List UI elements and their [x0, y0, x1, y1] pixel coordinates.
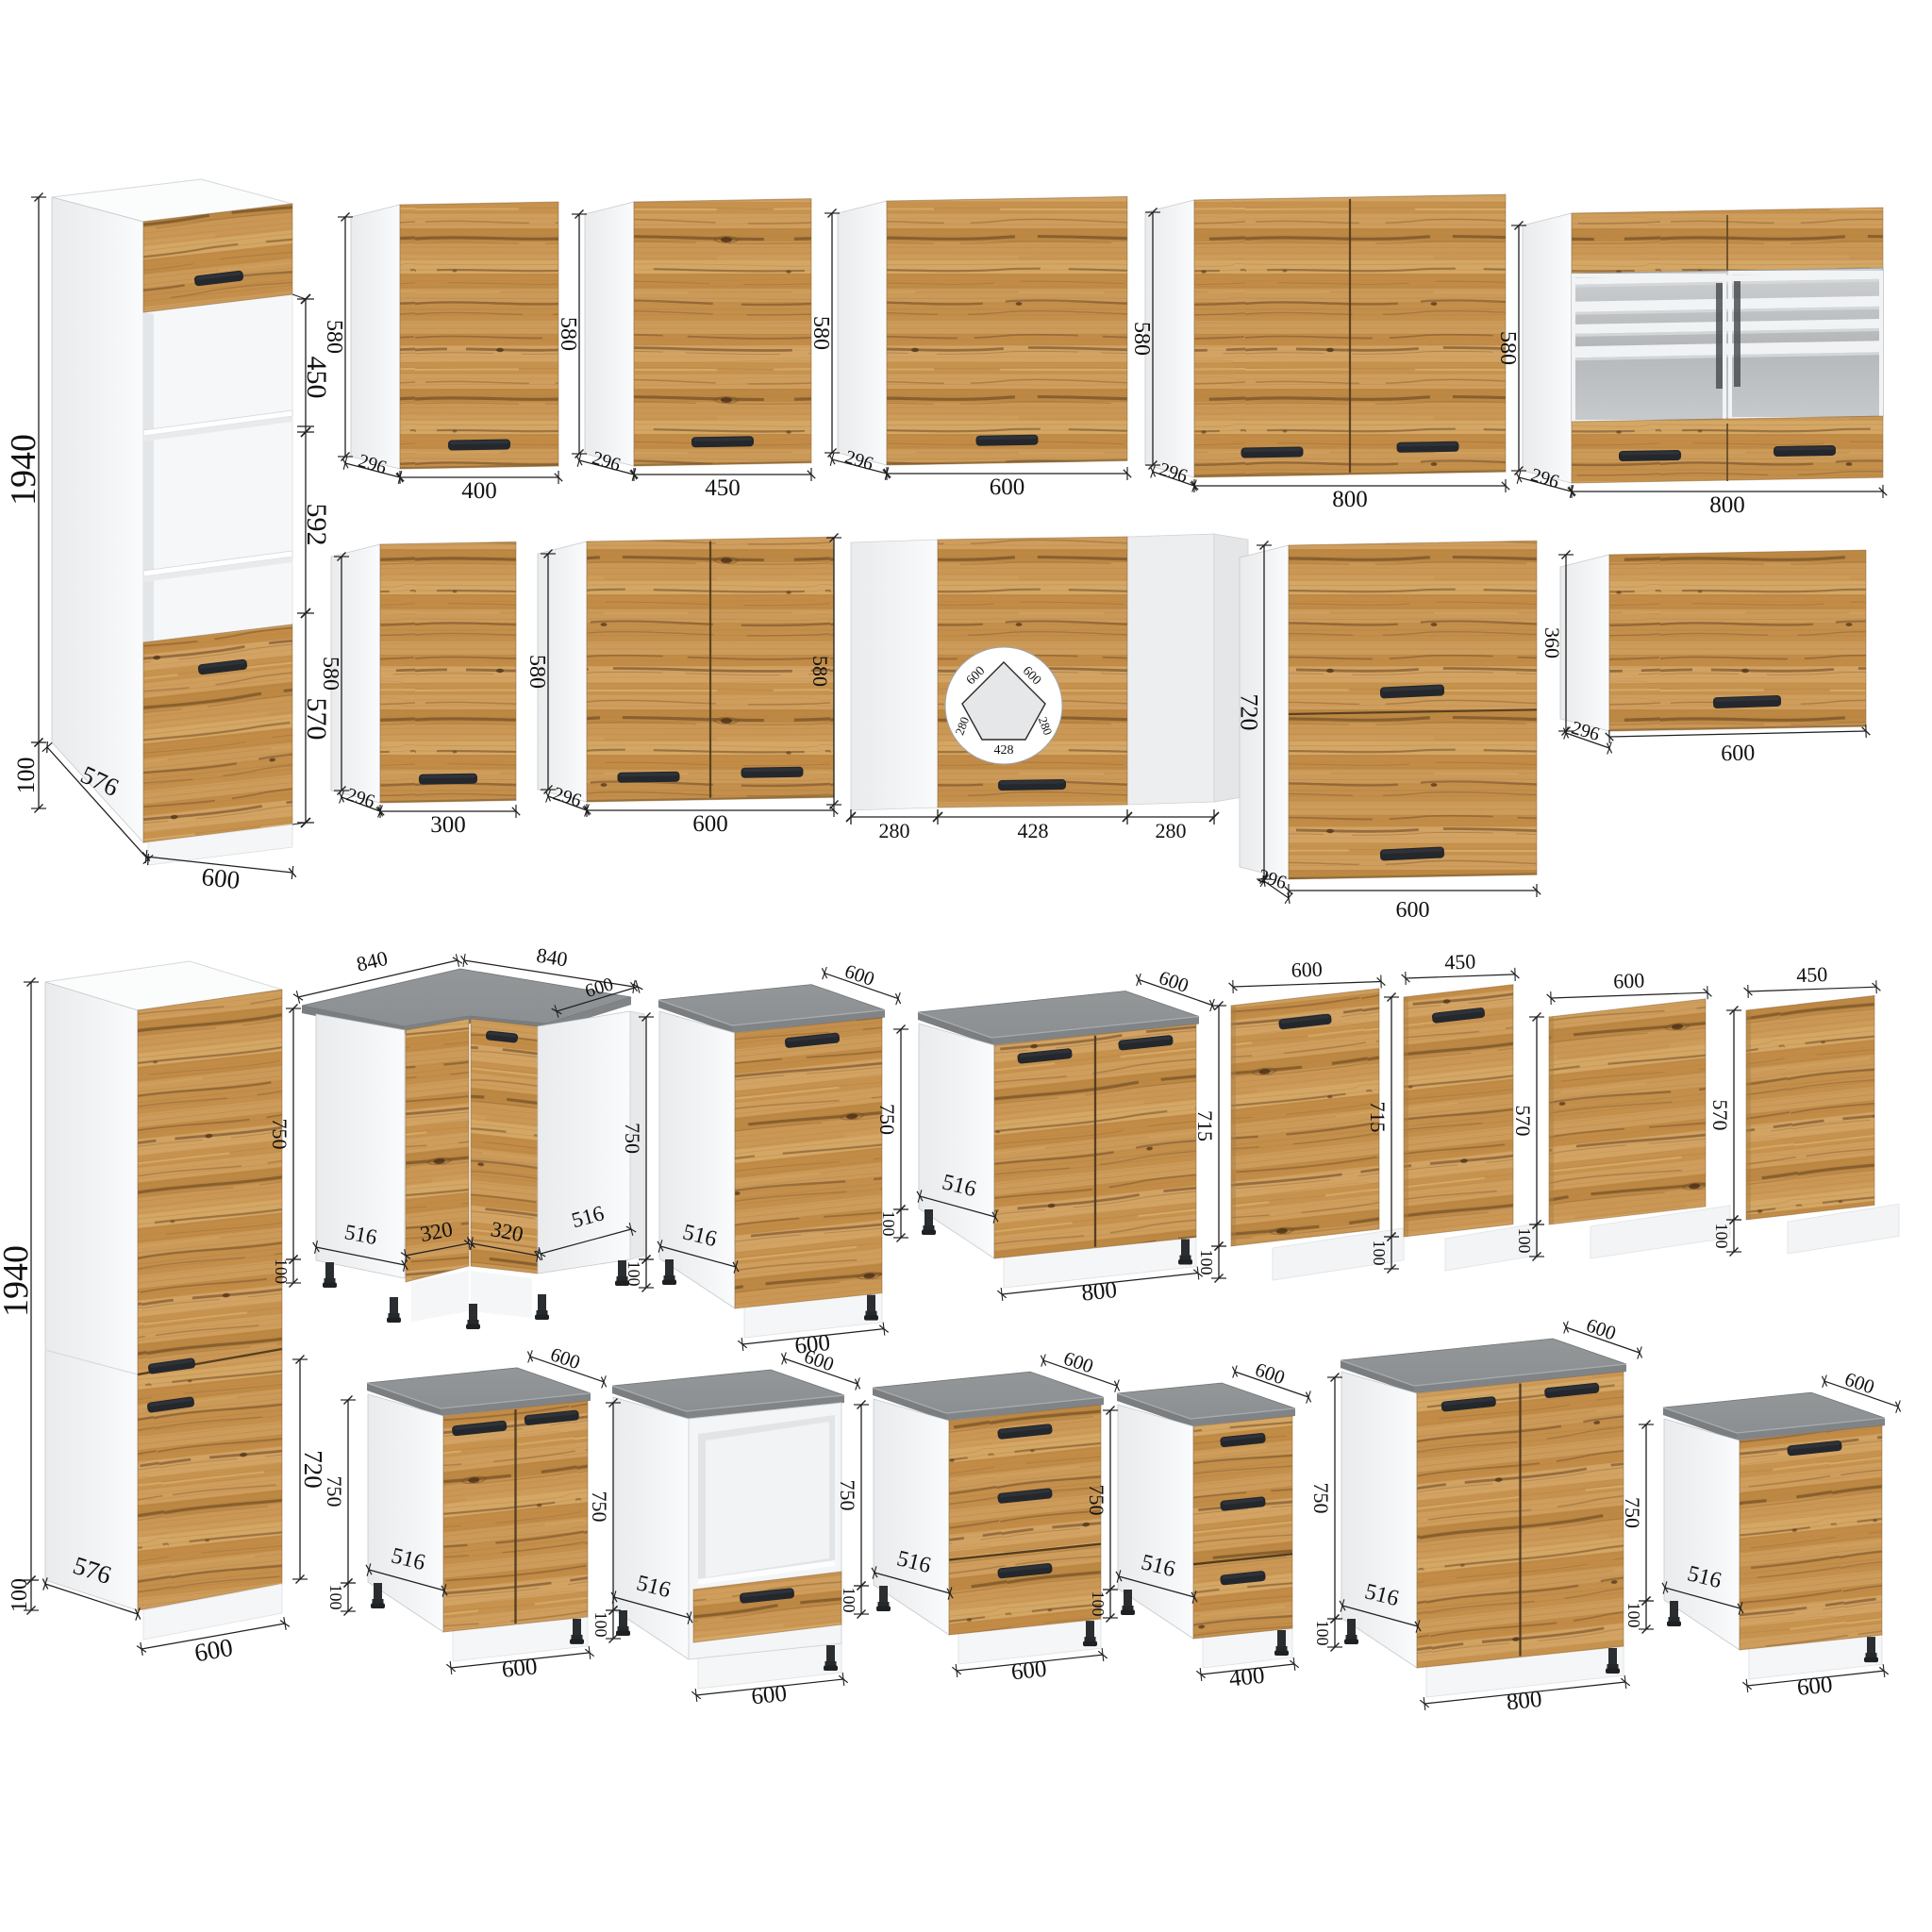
svg-text:580: 580	[318, 657, 342, 691]
svg-text:1940: 1940	[4, 434, 43, 506]
svg-text:750: 750	[323, 1476, 346, 1507]
svg-text:800: 800	[1080, 1277, 1118, 1307]
svg-text:600: 600	[692, 811, 728, 837]
svg-text:100: 100	[1197, 1250, 1216, 1275]
svg-text:100: 100	[12, 758, 40, 794]
svg-text:428: 428	[1018, 819, 1049, 842]
svg-text:100: 100	[591, 1612, 610, 1638]
svg-text:800: 800	[1332, 487, 1368, 512]
svg-text:750: 750	[875, 1104, 899, 1135]
svg-text:600: 600	[750, 1681, 788, 1710]
svg-text:300: 300	[430, 812, 466, 838]
svg-text:750: 750	[588, 1491, 611, 1523]
svg-text:580: 580	[808, 656, 832, 687]
svg-text:570: 570	[301, 698, 332, 741]
svg-text:400: 400	[1228, 1663, 1266, 1692]
svg-text:450: 450	[1444, 949, 1476, 974]
svg-text:600: 600	[1721, 741, 1755, 767]
svg-text:1940: 1940	[0, 1245, 36, 1317]
svg-text:600: 600	[200, 862, 241, 894]
svg-text:600: 600	[501, 1654, 539, 1683]
svg-text:450: 450	[705, 475, 741, 501]
svg-text:280: 280	[879, 819, 910, 842]
svg-text:600: 600	[990, 475, 1025, 500]
svg-text:100: 100	[1089, 1591, 1108, 1617]
svg-text:428: 428	[994, 743, 1014, 758]
svg-text:450: 450	[301, 357, 332, 399]
svg-text:100: 100	[1313, 1621, 1332, 1646]
svg-text:720: 720	[1235, 694, 1262, 731]
svg-text:580: 580	[322, 320, 346, 354]
svg-text:360: 360	[1541, 627, 1564, 658]
svg-text:715: 715	[1193, 1110, 1217, 1141]
svg-text:750: 750	[1085, 1485, 1108, 1516]
svg-text:100: 100	[879, 1211, 898, 1237]
svg-text:100: 100	[1370, 1241, 1389, 1266]
svg-text:750: 750	[836, 1480, 859, 1511]
svg-text:570: 570	[1708, 1100, 1732, 1131]
svg-text:100: 100	[1712, 1224, 1731, 1249]
svg-text:580: 580	[808, 316, 833, 350]
svg-text:100: 100	[8, 1578, 32, 1612]
svg-text:400: 400	[461, 478, 497, 504]
svg-text:100: 100	[840, 1588, 858, 1613]
svg-text:715: 715	[1366, 1102, 1390, 1133]
svg-text:100: 100	[1515, 1228, 1534, 1254]
svg-text:450: 450	[1796, 962, 1828, 987]
svg-text:800: 800	[1709, 492, 1745, 518]
svg-text:840: 840	[535, 943, 570, 972]
svg-text:580: 580	[556, 317, 580, 351]
svg-text:600: 600	[1396, 898, 1430, 923]
svg-text:600: 600	[1010, 1657, 1048, 1686]
svg-text:750: 750	[1309, 1483, 1333, 1514]
svg-text:100: 100	[625, 1261, 643, 1287]
svg-text:600: 600	[1291, 958, 1323, 982]
svg-text:800: 800	[1506, 1687, 1543, 1716]
svg-text:600: 600	[1796, 1672, 1834, 1701]
svg-text:580: 580	[1129, 322, 1154, 356]
svg-text:750: 750	[621, 1123, 644, 1154]
svg-text:750: 750	[1621, 1497, 1644, 1528]
svg-text:580: 580	[1495, 331, 1520, 365]
svg-text:100: 100	[272, 1258, 291, 1284]
svg-text:100: 100	[326, 1585, 345, 1610]
svg-text:600: 600	[1613, 968, 1645, 992]
svg-text:750: 750	[268, 1119, 291, 1150]
svg-text:592: 592	[301, 504, 332, 546]
svg-text:570: 570	[1511, 1106, 1535, 1137]
svg-text:280: 280	[1156, 819, 1187, 842]
svg-text:100: 100	[1624, 1603, 1643, 1628]
svg-text:580: 580	[525, 655, 549, 689]
